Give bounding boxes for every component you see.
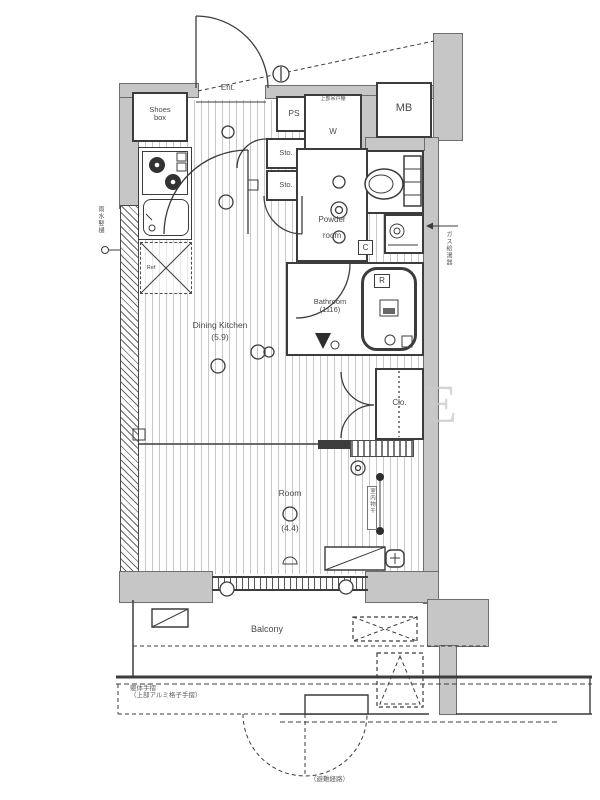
bathroom-line2: (1116) [292,306,368,314]
badge-r: R [374,274,390,288]
entrance-label: Ent. [214,84,242,92]
washer-shelf-note: 上部吊戸棚 [306,97,360,102]
washer-label: W [304,128,362,136]
shoes-box-label: Shoes box [136,106,184,122]
linework [0,0,600,800]
storage2-label: Sto. [266,181,306,189]
powder-line2: room [300,232,364,240]
ps-label: PS [276,109,312,118]
room-label: Room [260,489,320,498]
storage1-label: Sto. [266,149,306,157]
closet-label: Clo. [375,399,424,407]
dk-line1: Dining Kitchen [170,321,270,330]
powder-room-label: Powder room [300,216,364,241]
rain-pipe-note: 雨水竪樋 [96,206,105,252]
refrigerator-label: Ref [142,266,160,272]
balcony-label: Balcony [237,625,297,634]
handrail-note-line2: （上部アルミ格子手摺） [130,693,201,700]
handrail-note: 躯体手摺 （上部アルミ格子手摺） [130,686,201,700]
dk-label: Dining Kitchen (5.9) [170,321,270,342]
mb-label: MB [376,103,432,115]
indoor-laundry-note: 室内物干 [367,486,377,530]
evacuation-route-note: （避難経路） [310,777,349,784]
badge-c: C [358,240,373,255]
dk-line2: (5.9) [170,333,270,342]
powder-line1: Powder [300,216,364,224]
bathroom-label: Bathroom (1116) [292,298,368,314]
shoes-box-line2: box [136,114,184,122]
room-size-label: (4.4) [260,524,320,533]
floor-plan: E Ent. Shoes box PS MB Sto. Sto. 上部吊戸棚 W… [0,0,600,800]
watermark-letter: E [424,376,457,433]
gas-water-heater-note: ガス給湯器 [444,231,453,291]
